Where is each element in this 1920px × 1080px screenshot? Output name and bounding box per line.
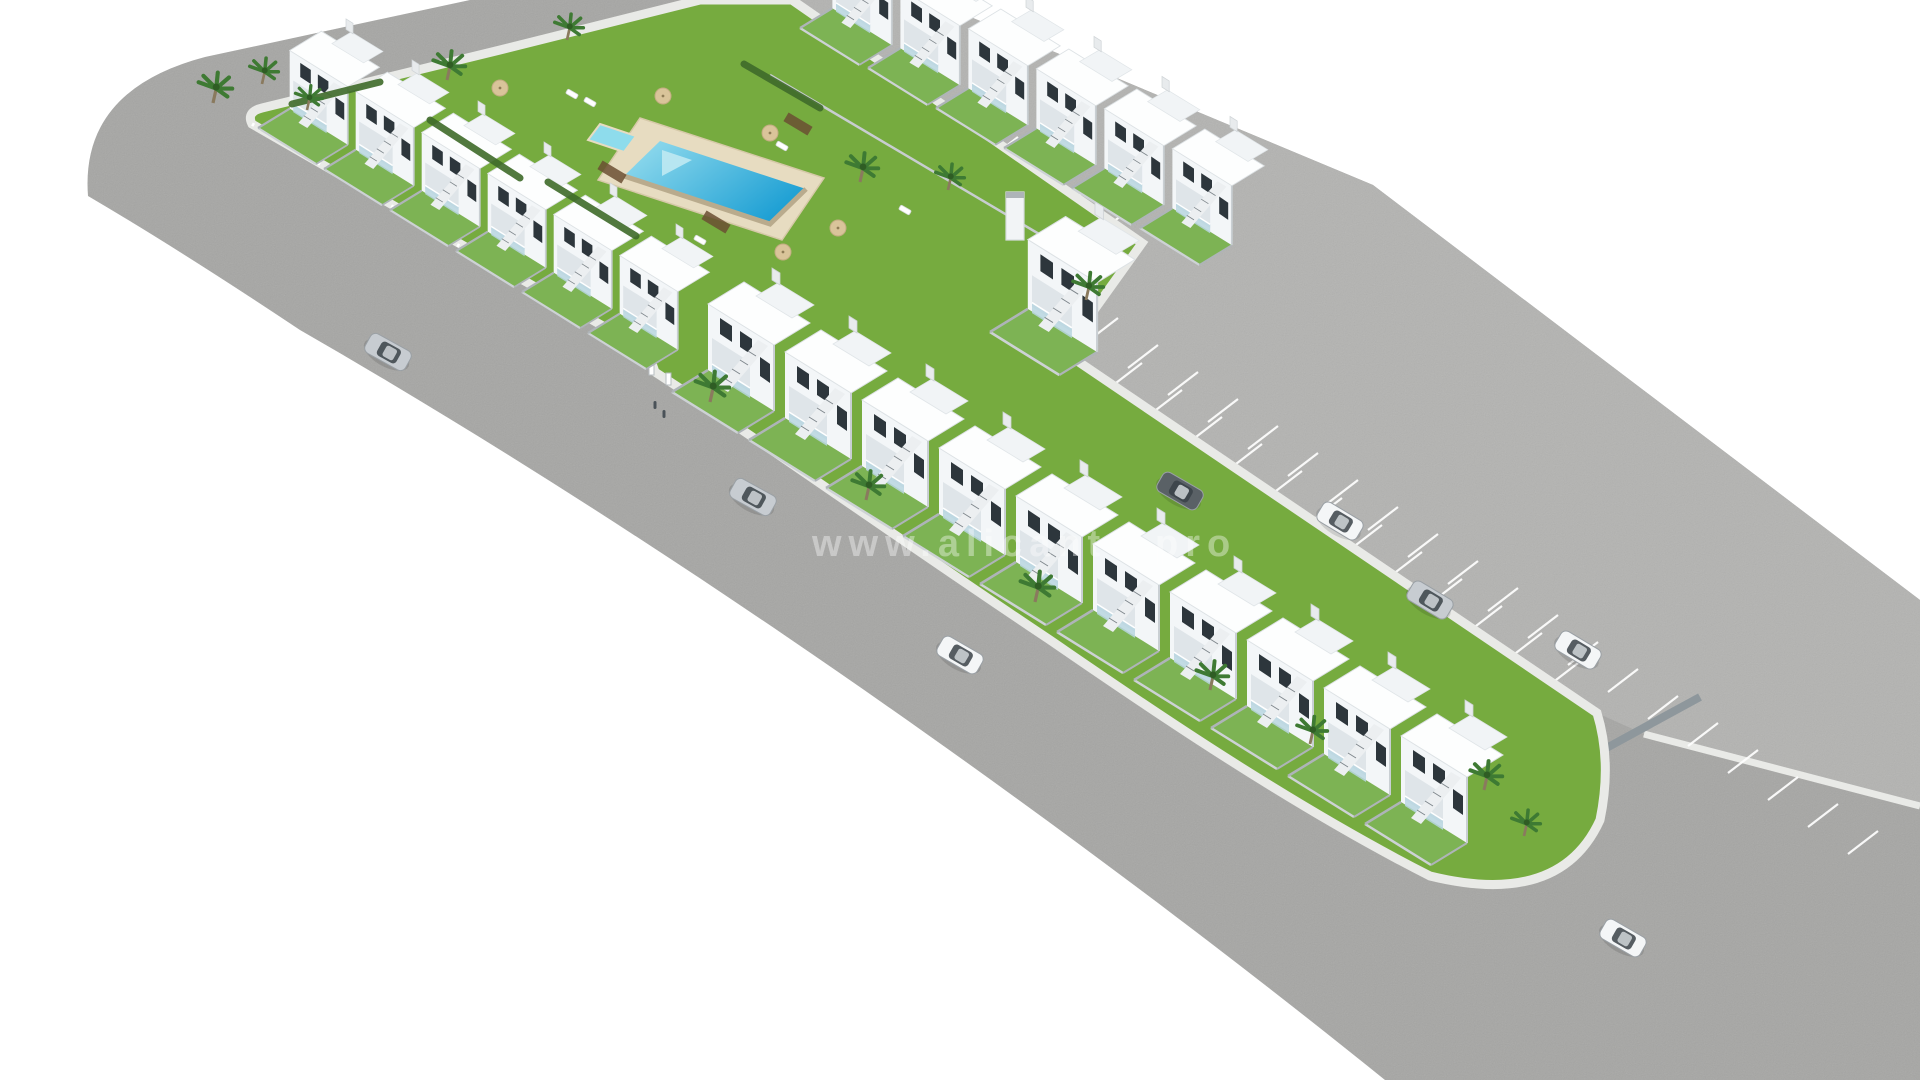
pedestrian [654,401,657,409]
straw-umbrella [492,80,508,96]
straw-umbrella [775,244,791,260]
straw-umbrella [762,125,778,141]
pedestrian [663,410,666,418]
straw-umbrella [655,88,671,104]
render-canvas: www.alicante-pro [0,0,1920,1080]
straw-umbrella [830,220,846,236]
entrance-gate-post [666,373,671,385]
connector-roof-stack [1006,192,1024,240]
watermark: www.alicante-pro [811,523,1237,565]
render-stage: www.alicante-pro [0,0,1920,1080]
